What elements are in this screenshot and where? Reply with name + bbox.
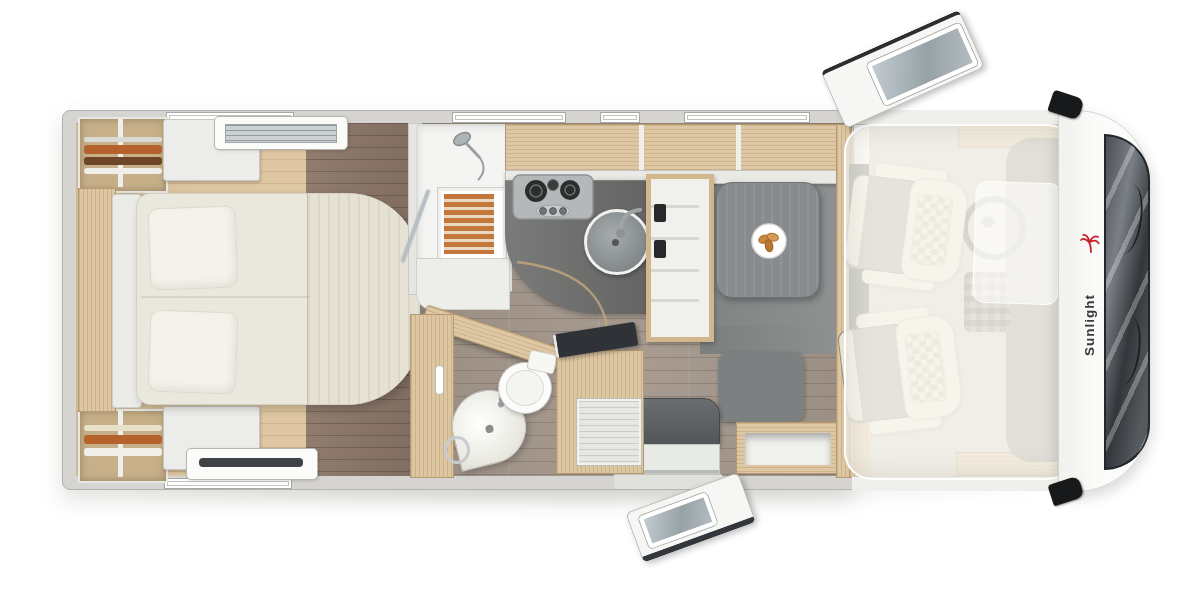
cabinet-divider — [736, 125, 741, 171]
door-handle — [435, 365, 444, 395]
shower-head-icon — [446, 128, 498, 184]
bench-cubby — [745, 433, 831, 465]
fridge-shelf — [651, 269, 699, 272]
wardrobe-bottom — [78, 409, 168, 483]
wardrobe-top — [78, 117, 168, 193]
cab-body-side-top — [852, 110, 1068, 125]
roof-vent-bottom — [186, 448, 318, 480]
clothes-rail-item — [84, 157, 162, 165]
roof-vent-louvres — [225, 124, 337, 143]
dropdown-bed-pillow — [972, 181, 1062, 306]
clothes-rail-item — [84, 145, 162, 154]
floorplan-scene: Sunlight — [0, 0, 1200, 600]
dinette-floor-section-2 — [700, 326, 852, 354]
roof-vent-top — [214, 116, 348, 150]
dropdown-bed-overlay — [844, 124, 1076, 480]
gas-hob-icon — [512, 174, 594, 220]
clothes-rail-item — [84, 435, 162, 444]
clothes-rail-item — [84, 448, 162, 456]
cabinet-divider — [639, 125, 644, 171]
brand-logo: Sunlight — [1082, 256, 1102, 356]
dinette-bench-side — [718, 352, 804, 422]
vanity-roller-front — [577, 399, 641, 465]
fridge-hinge — [654, 204, 666, 222]
fridge-unit — [646, 174, 714, 342]
cab-door-window — [866, 23, 978, 107]
plate-food-icon — [750, 222, 788, 260]
toilet-lid — [506, 370, 544, 406]
bathroom-ledge — [416, 258, 510, 310]
towel-ring-icon — [444, 436, 470, 464]
clothes-rail-item — [84, 168, 162, 174]
bed-seam — [141, 296, 309, 298]
bed-pillow-bottom — [148, 309, 239, 394]
wall-window-dinette-top — [684, 112, 810, 123]
teak-slats — [444, 194, 494, 254]
kitchen-overhead-cabinets — [505, 124, 852, 174]
roof-vent-slot — [199, 458, 303, 467]
basin-drain — [485, 424, 495, 434]
fridge-shelf — [651, 299, 699, 302]
clothes-rail-item — [84, 425, 162, 431]
wardrobe-divider — [118, 411, 123, 477]
clothes-rail-item — [84, 137, 162, 142]
sink-faucet-icon — [609, 199, 652, 242]
bed-foot-section — [307, 194, 420, 404]
fridge-hinge — [654, 240, 666, 258]
wall-window-small-top — [600, 112, 640, 123]
headboard-shelf — [78, 188, 116, 412]
island-bed — [136, 193, 420, 405]
bed-pillow-top — [148, 205, 239, 290]
windshield — [1104, 134, 1150, 470]
shower-teak-mat — [438, 188, 506, 266]
wall-window-kitchen-top — [452, 112, 566, 123]
palm-tree-icon — [1080, 232, 1102, 256]
dinette-bench-base — [736, 422, 842, 474]
bathroom-vanity — [556, 350, 644, 474]
